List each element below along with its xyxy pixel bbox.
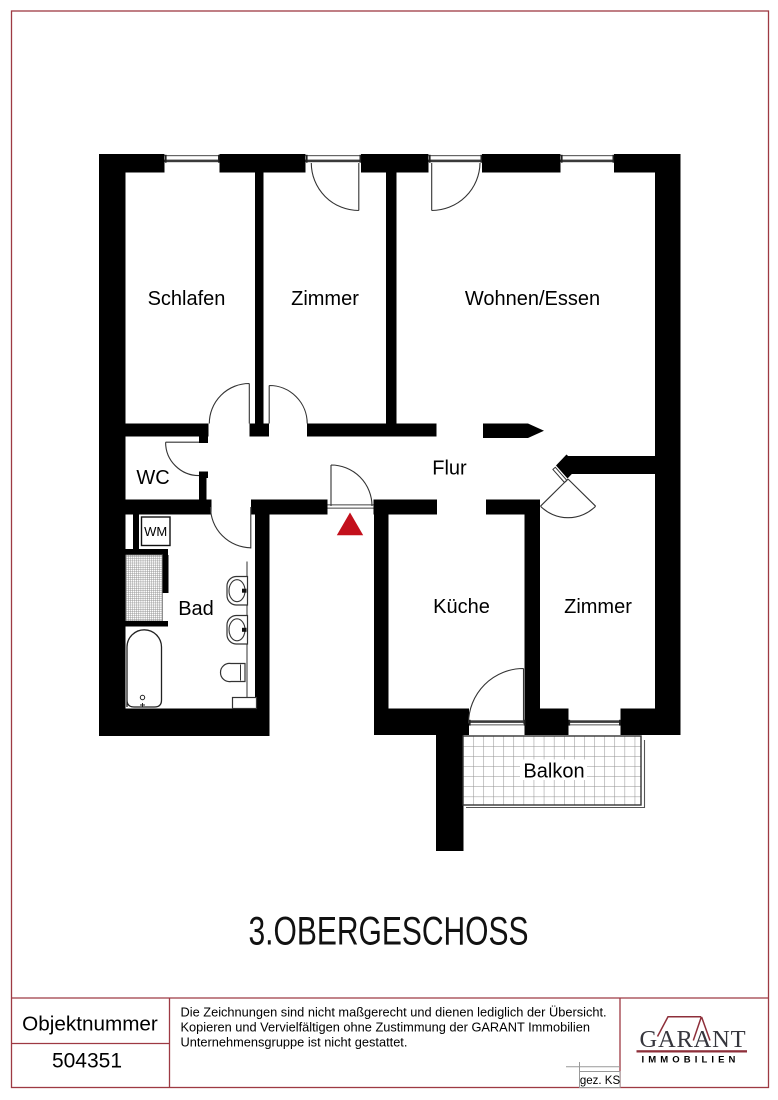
svg-text:Balkon: Balkon [523, 761, 584, 783]
svg-text:Bad: Bad [178, 598, 214, 620]
svg-text:Zimmer: Zimmer [564, 596, 632, 618]
svg-text:IMMOBILIEN: IMMOBILIEN [642, 1055, 740, 1066]
svg-text:Unternehmensgruppe ist nicht g: Unternehmensgruppe ist nicht gestattet. [181, 1034, 408, 1049]
svg-text:gez. KS: gez. KS [580, 1075, 621, 1087]
svg-text:Objektnummer: Objektnummer [22, 1013, 158, 1036]
svg-text:3.OBERGESCHOSS: 3.OBERGESCHOSS [249, 909, 529, 953]
svg-text:WC: WC [136, 467, 169, 489]
svg-text:504351: 504351 [52, 1050, 122, 1073]
svg-text:Küche: Küche [433, 596, 490, 618]
svg-text:Zimmer: Zimmer [291, 288, 359, 310]
svg-text:Kopieren und Vervielfältigen o: Kopieren und Vervielfältigen ohne Zustim… [181, 1020, 590, 1035]
svg-text:Schlafen: Schlafen [148, 288, 226, 310]
svg-text:Flur: Flur [432, 458, 467, 480]
svg-text:GARANT: GARANT [640, 1026, 747, 1053]
svg-text:Wohnen/Essen: Wohnen/Essen [465, 288, 600, 310]
svg-text:WM: WM [144, 524, 167, 539]
svg-text:Die Zeichnungen sind nicht maß: Die Zeichnungen sind nicht maßgerecht un… [181, 1005, 607, 1020]
